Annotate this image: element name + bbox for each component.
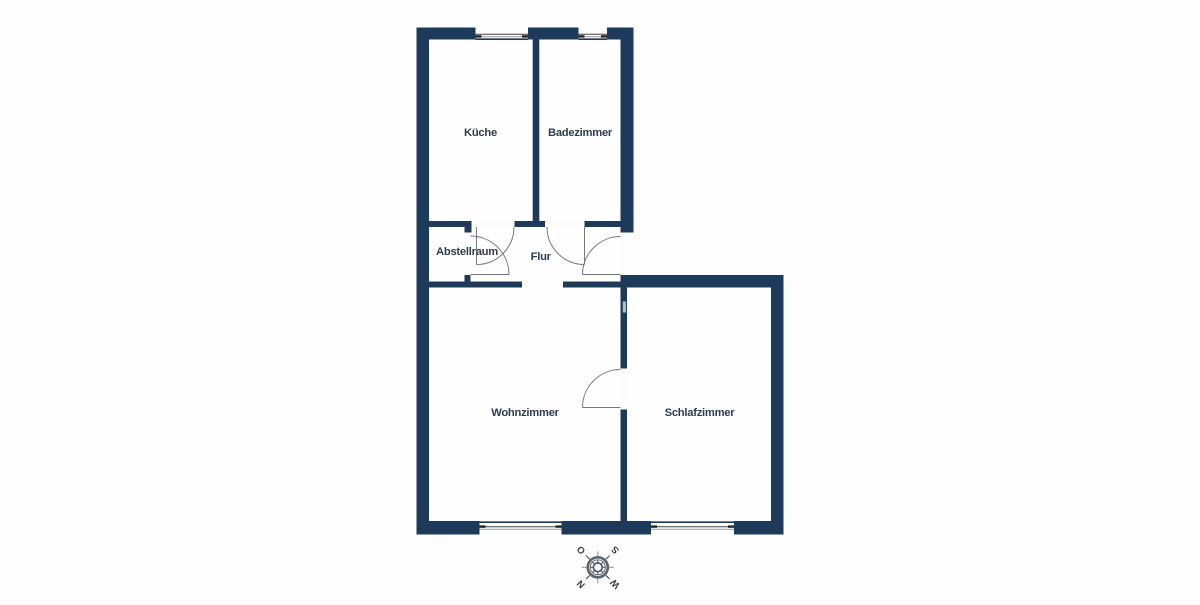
svg-text:Schlafzimmer: Schlafzimmer [665,407,736,419]
svg-text:Abstellraum: Abstellraum [436,246,498,258]
svg-text:Badezimmer: Badezimmer [548,127,613,139]
svg-text:Wohnzimmer: Wohnzimmer [491,407,559,419]
svg-text:Flur: Flur [531,251,552,263]
svg-text:Küche: Küche [464,127,497,139]
